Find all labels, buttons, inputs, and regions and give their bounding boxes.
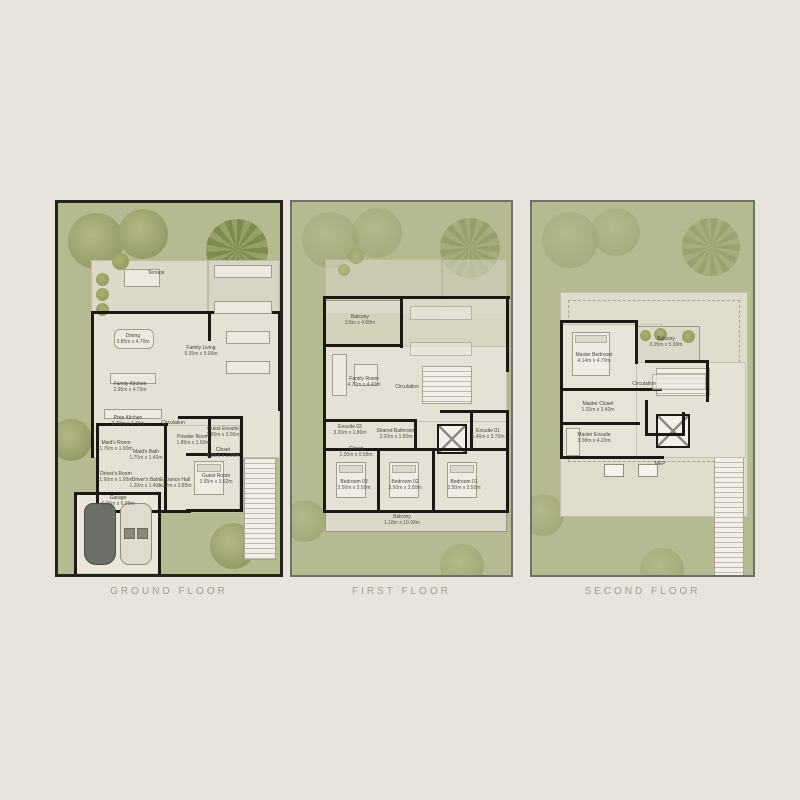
room-label-maids-room: Maid's Room 1.70m x 1.90m <box>99 440 132 453</box>
room-dims: 2.05m x 5.00m <box>649 342 682 348</box>
shrub <box>112 253 129 270</box>
room-label-balcony: Balcony 2.05m x 5.00m <box>649 336 682 349</box>
faded-sofa <box>410 306 472 320</box>
wall <box>560 456 664 459</box>
wall <box>208 311 211 341</box>
palm-tree <box>682 218 740 276</box>
room-label-master-closet: Master Closet 1.20m x 3.40m <box>581 401 614 414</box>
wall <box>400 298 403 348</box>
room-label-entrance-hall: Entrance Hall 1.22m x 3.85m <box>158 477 191 490</box>
wall <box>377 450 380 512</box>
room-label-ensuite-01: Ensuite 01 1.46m x 3.70m <box>471 428 504 441</box>
room-dims: 1.70m x 1.90m <box>99 446 132 452</box>
wall <box>323 298 326 513</box>
room-label-master-ensuite: Master Ensuite 3.08m x 4.20m <box>577 432 610 445</box>
wall <box>682 412 685 436</box>
room-dims: 1.85m x 1.50m <box>176 440 209 446</box>
tree <box>118 209 168 259</box>
room-dims: 3.85m x 4.70m <box>116 339 149 345</box>
room-dims: 2.95m x 4.70m <box>113 387 146 393</box>
wall <box>164 425 167 513</box>
balcony-plant <box>682 330 695 343</box>
wall <box>506 296 509 372</box>
room-name: Terrace <box>148 270 165 276</box>
wall <box>323 510 509 513</box>
wall <box>158 492 161 574</box>
pillow <box>392 465 416 473</box>
wall <box>440 410 509 413</box>
room-label-garage: Garage 6.00m x 6.00m <box>101 495 134 508</box>
car <box>84 503 116 565</box>
wall <box>400 296 510 299</box>
room-dims: 3.20m x 1.80m <box>376 434 415 440</box>
room-dims: 1.18m x 10.98m <box>384 520 420 526</box>
room-label-circulation: Circulation <box>161 420 185 426</box>
pillow <box>197 464 221 472</box>
floor-plan-second: Master Bedroom 4.14m x 4.70m Balcony 2.0… <box>530 200 755 577</box>
tree <box>290 500 326 542</box>
shrub <box>96 303 109 316</box>
tree <box>640 548 684 577</box>
room-dims: 3.5m x 4.68m <box>345 320 375 326</box>
tree <box>440 544 484 577</box>
room-label-master-bedroom: Master Bedroom 4.14m x 4.70m <box>576 352 613 365</box>
wall <box>645 400 648 436</box>
wall <box>432 450 435 512</box>
wall <box>560 422 640 425</box>
wall <box>706 362 709 402</box>
car-seat <box>137 528 148 539</box>
faded-sofa <box>410 342 472 356</box>
room-dims: 1.20m x 3.40m <box>581 407 614 413</box>
room-label-ensuite-03: Ensuite 03 3.20m x 1.80m <box>333 424 366 437</box>
room-dims: 3.50m x 3.50m <box>447 485 480 491</box>
room-name: MEP <box>655 461 666 467</box>
wall <box>278 311 281 411</box>
room-dims: 2.70m x 4.70m <box>111 421 144 427</box>
room-name: Circulation <box>395 384 419 390</box>
wall <box>96 423 99 513</box>
sofa <box>226 331 270 344</box>
wall <box>74 492 77 574</box>
room-name: Circulation <box>632 381 656 387</box>
room-label-closet: Closet 1.20m x 0.58m <box>339 446 372 459</box>
room-dims: 3.50m x 3.50m <box>337 485 370 491</box>
floor-plan-first: Balcony 3.5m x 4.68m Family Room 4.70m x… <box>290 200 513 577</box>
sofa <box>226 361 270 374</box>
garden-steps <box>714 452 744 577</box>
room-dims: 1.22m x 3.85m <box>158 483 191 489</box>
room-dims: 1.70m x 1.40m <box>129 455 162 461</box>
stairs <box>422 366 472 404</box>
room-label-rear-balcony: Balcony 1.18m x 10.98m <box>384 514 420 527</box>
car-seat <box>124 528 135 539</box>
room-label-shared-bathroom: Shared Bathroom 3.20m x 1.80m <box>376 428 415 441</box>
room-dims: 6.00m x 6.00m <box>101 501 134 507</box>
shrub <box>96 273 109 286</box>
outdoor-sofa <box>214 265 272 278</box>
wall <box>323 296 403 299</box>
pillow <box>339 465 363 473</box>
tree <box>542 212 598 268</box>
wall <box>323 344 401 347</box>
room-dims: 5.35m x 5.00m <box>184 351 217 357</box>
pillow <box>575 335 607 343</box>
room-label-drivers-room: Driver's Room 1.60m x 1.95m <box>99 471 132 484</box>
floor-plan-ground: Terrace Dining 3.85m x 4.70m Family Livi… <box>55 200 283 577</box>
room-label-powder-room: Powder Room 1.85m x 1.50m <box>176 434 209 447</box>
room-dims: 4.14m x 4.70m <box>576 358 613 364</box>
room-label-closet: Closet 0.60m x 1.95m <box>206 447 239 460</box>
room-dims: 3.20m x 1.80m <box>333 430 366 436</box>
room-dims: 3.50m x 3.50m <box>388 485 421 491</box>
outdoor-sofa <box>214 301 272 314</box>
room-label-family-room: Family Room 4.70m x 4.40m <box>347 376 380 389</box>
room-dims: 1.60m x 1.95m <box>99 477 132 483</box>
room-label-circulation: Circulation <box>632 381 656 387</box>
room-label-mep: MEP <box>655 461 666 467</box>
room-label-bedroom-02: Bedroom 02 3.50m x 3.50m <box>388 479 421 492</box>
wall <box>635 320 638 364</box>
room-name: Circulation <box>161 420 185 426</box>
stair-landing <box>652 374 706 390</box>
wall <box>645 433 685 436</box>
room-dims: 1.95m x 3.00m <box>206 432 239 438</box>
room-dims: 3.95m x 3.62m <box>199 479 232 485</box>
room-label-balcony: Balcony 3.5m x 4.68m <box>345 314 375 327</box>
floor-title-second: SECOND FLOOR <box>530 586 755 597</box>
room-dims: 1.46m x 3.70m <box>471 434 504 440</box>
room-label-bedroom-03: Bedroom 03 3.50m x 3.50m <box>337 479 370 492</box>
wall <box>323 419 417 422</box>
room-label-terrace: Terrace <box>148 270 165 276</box>
room-dims: 3.08m x 4.20m <box>577 438 610 444</box>
room-dims: 0.60m x 1.95m <box>206 453 239 459</box>
room-label-dining: Dining 3.85m x 4.70m <box>116 333 149 346</box>
car <box>120 503 152 565</box>
room-label-guest-ensuite: Guest Ensuite 1.95m x 3.00m <box>206 426 239 439</box>
floor-title-ground: GROUND FLOOR <box>55 586 283 597</box>
room-label-bedroom-01: Bedroom 01 3.50m x 3.50m <box>447 479 480 492</box>
room-label-family-kitchen: Family Kitchen 2.95m x 4.70m <box>113 381 146 394</box>
wall <box>560 320 638 323</box>
tree <box>530 494 564 536</box>
garden-stairs <box>244 458 276 560</box>
room-label-prep-kitchen: Prep Kitchen 2.70m x 4.70m <box>111 415 144 428</box>
tree <box>592 208 640 256</box>
sofa <box>332 354 347 396</box>
shrub <box>338 264 350 276</box>
room-dims: 4.70m x 4.40m <box>347 382 380 388</box>
pillow <box>450 465 474 473</box>
room-label-circulation: Circulation <box>395 384 419 390</box>
wall <box>240 416 243 511</box>
room-label-family-living: Family Living 5.35m x 5.00m <box>184 345 217 358</box>
shrub <box>96 288 109 301</box>
wall <box>186 509 243 512</box>
wall <box>645 360 709 363</box>
shrub <box>348 248 364 264</box>
room-label-maids-bath: Maid's Bath 1.70m x 1.40m <box>129 449 162 462</box>
floor-title-first: FIRST FLOOR <box>290 586 513 597</box>
tree <box>55 419 92 461</box>
roof-vent <box>604 464 624 477</box>
wall <box>506 410 509 513</box>
room-label-guest-room: Guest Room 3.95m x 3.62m <box>199 473 232 486</box>
wall <box>91 311 94 458</box>
room-dims: 1.20m x 0.58m <box>339 452 372 458</box>
floor-plan-sheet: Terrace Dining 3.85m x 4.70m Family Livi… <box>0 0 800 800</box>
wall <box>560 388 662 391</box>
